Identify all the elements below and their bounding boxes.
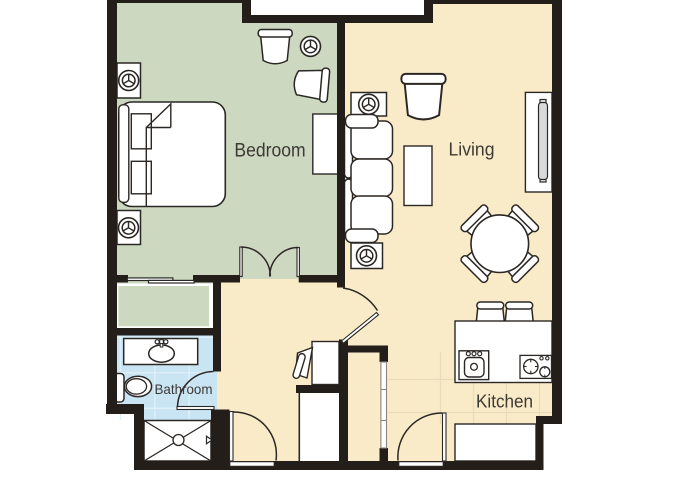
svg-text:Living: Living xyxy=(449,140,495,160)
svg-text:Bathroom: Bathroom xyxy=(155,381,213,397)
svg-text:Bedroom: Bedroom xyxy=(234,141,305,162)
svg-text:Kitchen: Kitchen xyxy=(476,392,533,412)
